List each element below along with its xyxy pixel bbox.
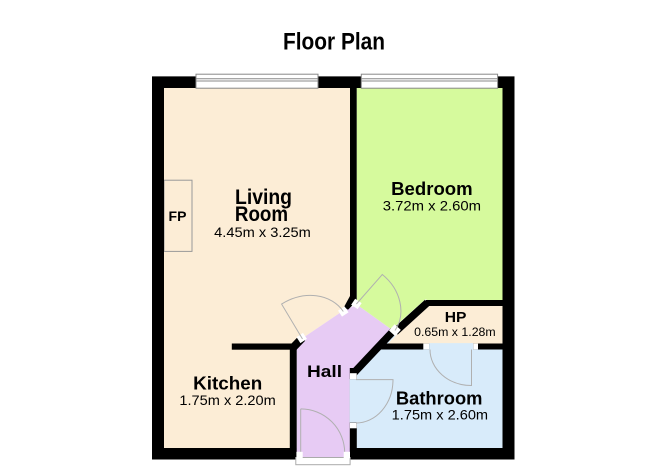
svg-text:Bedroom: Bedroom [391,178,473,199]
svg-text:FP: FP [169,208,187,224]
svg-text:1.75m x 2.20m: 1.75m x 2.20m [179,392,275,408]
svg-text:Hall: Hall [307,362,342,381]
svg-text:Kitchen: Kitchen [193,372,262,393]
svg-text:Bathroom: Bathroom [396,387,483,408]
svg-text:Floor Plan: Floor Plan [283,29,385,56]
svg-text:HP: HP [445,309,467,326]
svg-text:4.45m x 3.25m: 4.45m x 3.25m [214,224,311,240]
svg-text:Room: Room [235,203,288,226]
svg-text:3.72m x 2.60m: 3.72m x 2.60m [383,198,481,214]
svg-text:0.65m x 1.28m: 0.65m x 1.28m [414,325,496,339]
svg-text:1.75m x 2.60m: 1.75m x 2.60m [392,407,488,423]
